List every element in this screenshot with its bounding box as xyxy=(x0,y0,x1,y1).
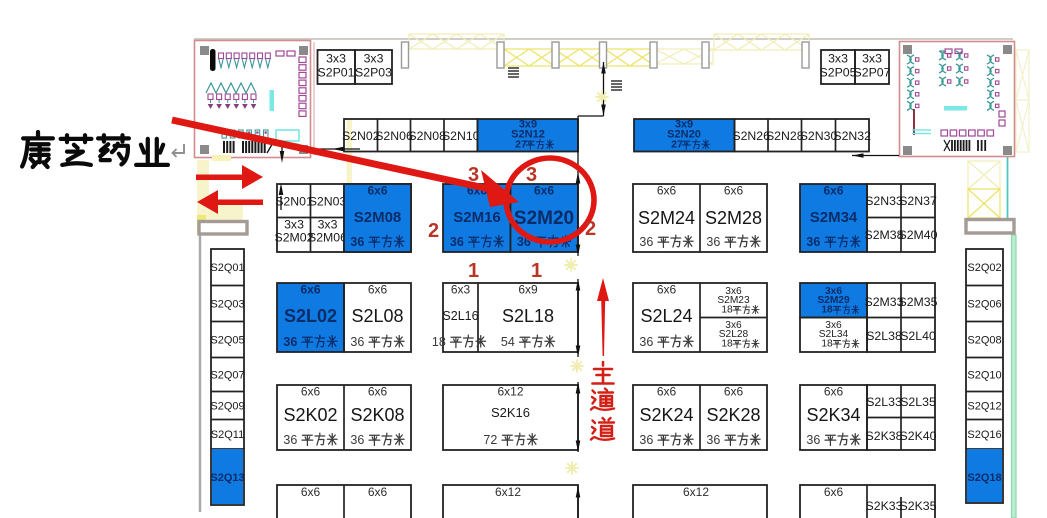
svg-text:6x6: 6x6 xyxy=(368,283,388,297)
svg-text:S2N32: S2N32 xyxy=(833,129,871,143)
svg-text:36: 36 xyxy=(639,335,653,349)
svg-text:36: 36 xyxy=(806,235,820,249)
svg-text:3x3: 3x3 xyxy=(364,52,384,66)
svg-text:S2L33: S2L33 xyxy=(866,395,902,409)
svg-text:18: 18 xyxy=(821,305,833,316)
svg-text:6x9: 6x9 xyxy=(518,283,538,297)
svg-text:S2Q05: S2Q05 xyxy=(210,335,244,347)
svg-text:36: 36 xyxy=(350,235,364,249)
svg-text:18: 18 xyxy=(721,305,733,316)
svg-text:S2N26: S2N26 xyxy=(732,129,770,143)
svg-text:S2Q18: S2Q18 xyxy=(967,472,1001,484)
svg-text:3: 3 xyxy=(468,164,479,186)
svg-text:S2K38: S2K38 xyxy=(866,429,903,443)
svg-text:S2N03: S2N03 xyxy=(309,195,347,209)
svg-text:3x3: 3x3 xyxy=(318,218,338,232)
svg-text:6x6: 6x6 xyxy=(824,385,844,399)
svg-text:36: 36 xyxy=(283,335,297,349)
svg-text:S2K24: S2K24 xyxy=(639,405,693,425)
svg-text:6x6: 6x6 xyxy=(724,385,744,399)
svg-text:S2N02: S2N02 xyxy=(342,129,380,143)
svg-text:S2M35: S2M35 xyxy=(899,295,938,309)
svg-text:6x6: 6x6 xyxy=(367,184,387,198)
svg-text:S2N37: S2N37 xyxy=(899,194,937,208)
svg-text:S2L40: S2L40 xyxy=(900,329,936,343)
svg-text:S2Q10: S2Q10 xyxy=(967,370,1001,382)
svg-text:36: 36 xyxy=(706,433,720,447)
svg-text:S2K35: S2K35 xyxy=(900,499,937,513)
svg-text:S2K08: S2K08 xyxy=(350,405,404,425)
svg-text:S2K28: S2K28 xyxy=(706,405,760,425)
svg-text:2: 2 xyxy=(585,218,596,240)
svg-text:S2Q16: S2Q16 xyxy=(967,429,1001,441)
svg-text:S2N08: S2N08 xyxy=(408,129,446,143)
svg-text:S2K02: S2K02 xyxy=(283,405,337,425)
svg-text:3x3: 3x3 xyxy=(828,52,848,66)
svg-text:36: 36 xyxy=(639,235,653,249)
svg-text:S2M40: S2M40 xyxy=(899,228,938,242)
svg-text:3x3: 3x3 xyxy=(326,52,346,66)
svg-text:6x6: 6x6 xyxy=(368,385,388,399)
svg-text:S2N33: S2N33 xyxy=(865,194,903,208)
svg-text:S2Q09: S2Q09 xyxy=(210,401,244,413)
svg-text:3x3: 3x3 xyxy=(862,52,882,66)
svg-text:18: 18 xyxy=(721,339,733,350)
svg-text:6x12: 6x12 xyxy=(683,485,709,499)
svg-text:36: 36 xyxy=(706,235,720,249)
svg-text:S2K33: S2K33 xyxy=(866,499,903,513)
svg-text:S2Q08: S2Q08 xyxy=(967,335,1001,347)
svg-text:18: 18 xyxy=(432,335,446,349)
svg-text:3: 3 xyxy=(526,164,537,186)
svg-text:S2M34: S2M34 xyxy=(810,209,858,226)
svg-text:S2N28: S2N28 xyxy=(766,129,804,143)
svg-text:S2M24: S2M24 xyxy=(638,208,695,228)
svg-text:S2N06: S2N06 xyxy=(375,129,413,143)
svg-text:36: 36 xyxy=(283,433,297,447)
svg-text:S2M08: S2M08 xyxy=(354,209,402,226)
svg-text:6x6: 6x6 xyxy=(724,184,744,198)
svg-text:6x6: 6x6 xyxy=(657,184,677,198)
svg-text:6x6: 6x6 xyxy=(300,283,320,297)
svg-text:6x3: 6x3 xyxy=(451,283,471,297)
svg-text:27: 27 xyxy=(515,139,527,151)
svg-text:S2Q12: S2Q12 xyxy=(967,401,1001,413)
svg-text:S2N30: S2N30 xyxy=(800,129,838,143)
svg-text:6x12: 6x12 xyxy=(497,385,523,399)
svg-text:S2Q13: S2Q13 xyxy=(210,472,244,484)
svg-text:S2M20: S2M20 xyxy=(514,208,574,229)
svg-text:2: 2 xyxy=(428,220,439,242)
svg-text:6x12: 6x12 xyxy=(495,485,521,499)
svg-text:S2Q03: S2Q03 xyxy=(210,299,244,311)
svg-text:S2L38: S2L38 xyxy=(866,329,902,343)
svg-text:27: 27 xyxy=(671,139,683,151)
svg-text:S2Q11: S2Q11 xyxy=(211,429,244,441)
svg-text:54: 54 xyxy=(501,335,515,349)
svg-text:S2P05: S2P05 xyxy=(820,66,857,80)
svg-text:S2L08: S2L08 xyxy=(351,306,403,326)
svg-text:6x6: 6x6 xyxy=(368,485,388,499)
svg-text:18: 18 xyxy=(821,339,833,350)
svg-text:6x6: 6x6 xyxy=(301,385,321,399)
svg-text:S2M16: S2M16 xyxy=(453,209,501,226)
svg-text:S2L02: S2L02 xyxy=(284,306,337,326)
svg-text:3x3: 3x3 xyxy=(284,218,304,232)
svg-text:S2L24: S2L24 xyxy=(640,306,692,326)
svg-text:6x6: 6x6 xyxy=(823,184,843,198)
svg-text:S2P07: S2P07 xyxy=(854,66,891,80)
svg-text:S2Q06: S2Q06 xyxy=(967,299,1001,311)
svg-text:S2M28: S2M28 xyxy=(705,208,762,228)
svg-text:6x6: 6x6 xyxy=(657,283,677,297)
svg-text:S2Q01: S2Q01 xyxy=(210,262,244,274)
svg-text:36: 36 xyxy=(806,433,820,447)
svg-text:S2M06: S2M06 xyxy=(308,231,347,245)
svg-text:6x6: 6x6 xyxy=(657,385,677,399)
svg-text:36: 36 xyxy=(350,335,364,349)
svg-text:36: 36 xyxy=(450,235,464,249)
svg-text:S2P01: S2P01 xyxy=(318,66,355,80)
svg-text:1: 1 xyxy=(531,260,542,282)
svg-text:6x6: 6x6 xyxy=(301,485,321,499)
svg-text:S2K40: S2K40 xyxy=(900,429,937,443)
svg-text:S2L18: S2L18 xyxy=(502,306,554,326)
svg-text:1: 1 xyxy=(468,260,479,282)
svg-text:36: 36 xyxy=(639,433,653,447)
svg-text:S2K16: S2K16 xyxy=(491,405,530,420)
svg-text:S2Q02: S2Q02 xyxy=(967,262,1001,274)
svg-text:S2L35: S2L35 xyxy=(900,395,936,409)
svg-text:S2P03: S2P03 xyxy=(355,66,392,80)
svg-text:S2L16: S2L16 xyxy=(442,309,478,323)
svg-text:72: 72 xyxy=(483,433,497,447)
svg-text:S2N10: S2N10 xyxy=(442,129,480,143)
svg-text:S2K34: S2K34 xyxy=(806,405,860,425)
svg-text:36: 36 xyxy=(350,433,364,447)
svg-text:6x6: 6x6 xyxy=(824,485,844,499)
svg-text:S2Q07: S2Q07 xyxy=(210,370,244,382)
